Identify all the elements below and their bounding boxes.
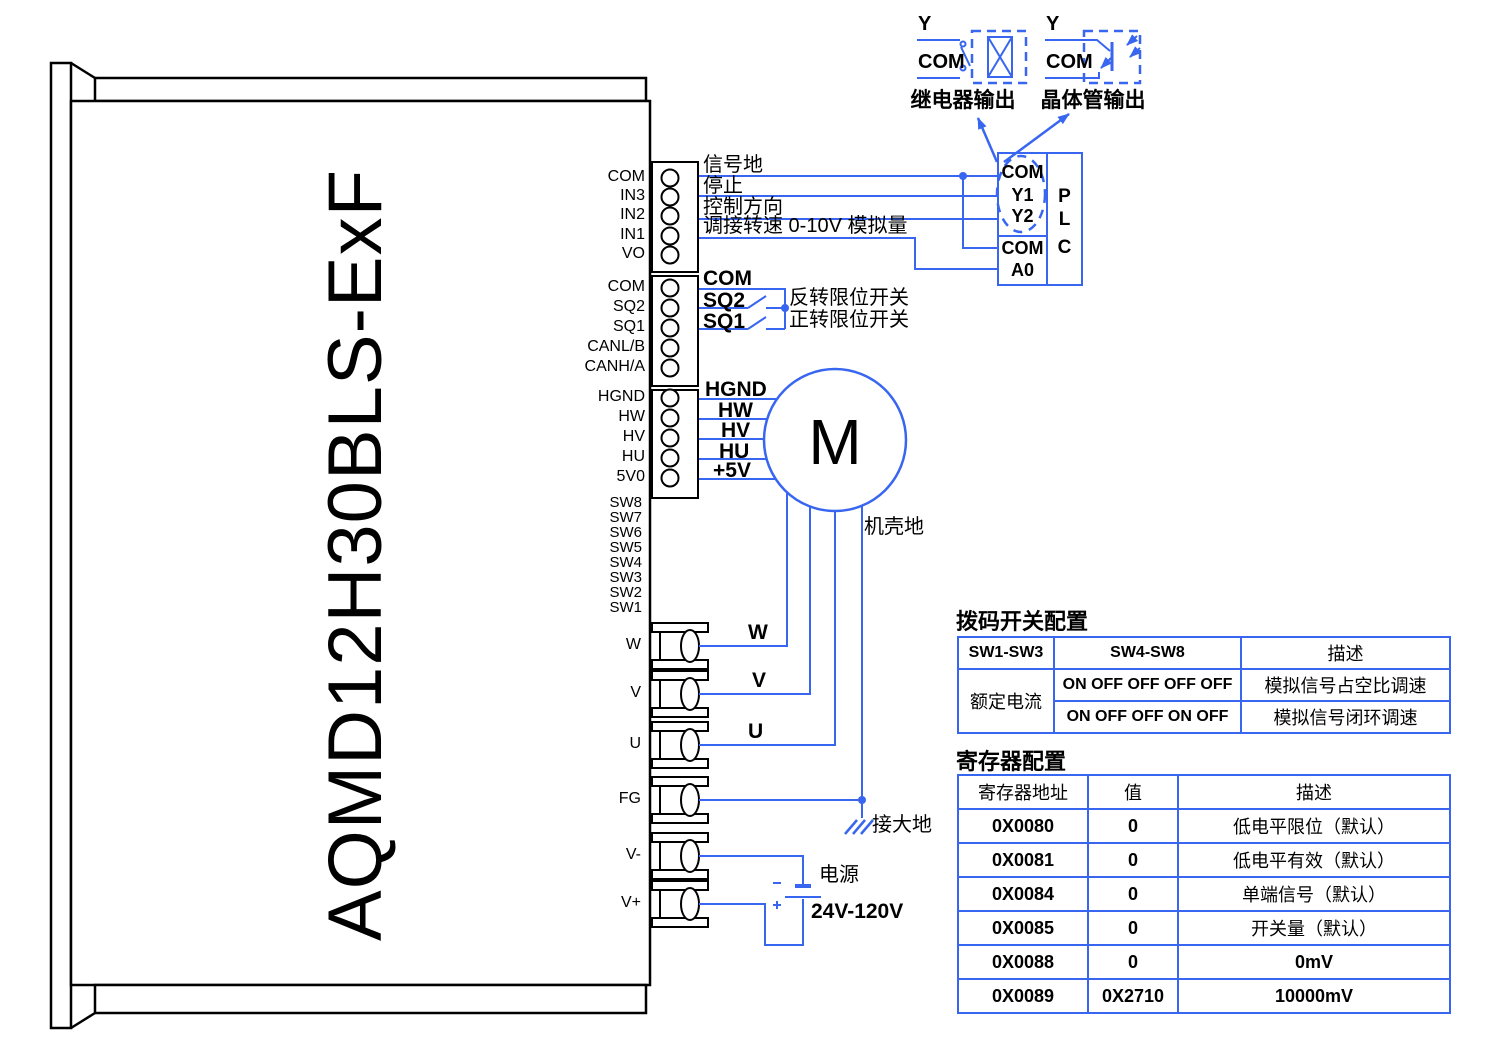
reg-addr: 0X0089 (958, 979, 1088, 1013)
reg-addr: 0X0085 (958, 911, 1088, 945)
wiring-diagram: AQMD12H30BLS-ExF M COM IN3 IN2 IN1 VO CO… (0, 0, 1500, 1048)
pin-label-in3: IN3 (569, 187, 645, 205)
dip-table-title: 拨码开关配置 (956, 604, 1088, 636)
pin-label-hgnd: HGND (569, 388, 645, 406)
table-row: 0X0084 0 单端信号（默认） (958, 877, 1450, 911)
reg-desc: 低电平限位（默认） (1178, 809, 1450, 843)
reg-value: 0 (1088, 877, 1178, 911)
plc-pin-a0: A0 (998, 260, 1047, 281)
pin-label-hu: HU (569, 448, 645, 466)
wire-label-stop: 停止 (703, 175, 743, 197)
dip-col2-header: SW4-SW8 (1054, 637, 1241, 669)
pin-label-sw1: SW1 (566, 600, 642, 617)
table-row: 额定电流 ON OFF OFF OFF OFF 模拟信号占空比调速 (958, 669, 1450, 701)
pin-label-sq1: SQ1 (569, 318, 645, 336)
dip-row1-desc: 模拟信号占空比调速 (1241, 669, 1450, 701)
pin-label-fg: FG (565, 790, 641, 808)
pin-label-in2: IN2 (569, 206, 645, 224)
transistor-y-label: Y (1046, 13, 1059, 35)
relay-output-caption: 继电器输出 (902, 84, 1024, 114)
pin-label-hv: HV (569, 428, 645, 446)
pin-label-com2: COM (569, 278, 645, 296)
reg-value: 0X2710 (1088, 979, 1178, 1013)
pin-label-hw: HW (569, 408, 645, 426)
reg-value: 0 (1088, 945, 1178, 979)
reg-col1-header: 寄存器地址 (958, 775, 1088, 809)
wire-label-sq2: SQ2 (703, 289, 745, 312)
dip-row1-switches: ON OFF OFF OFF OFF (1054, 669, 1241, 701)
wire-label-u: U (748, 720, 763, 743)
pin-label-u: U (565, 735, 641, 753)
wire-vminus (699, 856, 803, 884)
plc-letter-c: C (1047, 237, 1082, 259)
dip-row-group: 额定电流 (958, 669, 1054, 733)
relay-y-label: Y (918, 13, 931, 35)
wire-label-sq1: SQ1 (703, 310, 745, 333)
table-row: SW1-SW3 SW4-SW8 描述 (958, 637, 1450, 669)
power-supply-label: 电源 (819, 864, 859, 886)
register-table-title: 寄存器配置 (956, 744, 1066, 776)
pin-label-canlb: CANL/B (569, 338, 645, 356)
register-table: 寄存器地址 值 描述 0X0080 0 低电平限位（默认） 0X0081 0 低… (957, 774, 1451, 1014)
table-row: 0X0085 0 开关量（默认） (958, 911, 1450, 945)
pin-label-in1: IN1 (569, 226, 645, 244)
relay-com-label: COM (918, 51, 965, 73)
terminal-block-io (652, 162, 698, 272)
wire-w (699, 470, 787, 646)
wire-label-hgnd: HGND (705, 378, 767, 401)
reg-value: 0 (1088, 911, 1178, 945)
reg-desc: 开关量（默认） (1178, 911, 1450, 945)
plc-letter-l: L (1047, 209, 1082, 231)
terminal-block-hall (652, 390, 698, 499)
pin-label-vplus: V+ (565, 894, 641, 912)
table-row: 0X0088 0 0mV (958, 945, 1450, 979)
table-row: 0X0080 0 低电平限位（默认） (958, 809, 1450, 843)
junction-dot (781, 304, 789, 312)
wire-label-analog-speed: 调接转速 0-10V 模拟量 (703, 215, 907, 237)
transistor-output-caption: 晶体管输出 (1032, 84, 1154, 114)
pin-label-canha: CANH/A (569, 358, 645, 376)
reg-desc: 低电平有效（默认） (1178, 843, 1450, 877)
pin-label-5v0: 5V0 (569, 468, 645, 486)
arrow-to-transistor (1004, 114, 1069, 162)
arrow-to-relay (978, 118, 997, 162)
wire-label-forward-limit: 正转限位开关 (789, 309, 909, 331)
pin-label-vminus: V- (565, 846, 641, 864)
wire-label-signal-ground: 信号地 (703, 154, 763, 176)
wire-com-to-plc-com (963, 176, 998, 248)
reg-value: 0 (1088, 843, 1178, 877)
reg-desc: 0mV (1178, 945, 1450, 979)
table-row: 寄存器地址 值 描述 (958, 775, 1450, 809)
plc-letter-p: P (1047, 186, 1082, 208)
reg-col3-header: 描述 (1178, 775, 1450, 809)
dip-row2-switches: ON OFF OFF ON OFF (1054, 701, 1241, 733)
pin-label-sq2: SQ2 (569, 298, 645, 316)
wire-label-hv: HV (721, 419, 750, 442)
wire-label-chassis-ground: 机壳地 (864, 516, 924, 538)
wire-vplus (699, 899, 803, 945)
motor-symbol: M (795, 402, 875, 482)
output-type-arrows (978, 114, 1069, 162)
pin-label-w: W (565, 636, 641, 654)
pin-label-v: V (565, 684, 641, 702)
dip-col1-header: SW1-SW3 (958, 637, 1054, 669)
reg-addr: 0X0080 (958, 809, 1088, 843)
wire-analog-speed (699, 238, 998, 269)
table-row: 0X0089 0X2710 10000mV (958, 979, 1450, 1013)
reg-col2-header: 值 (1088, 775, 1178, 809)
terminal-block-limit-can (652, 276, 698, 386)
wire-label-v: V (752, 669, 766, 692)
reg-desc: 10000mV (1178, 979, 1450, 1013)
dip-row2-desc: 模拟信号闭环调速 (1241, 701, 1450, 733)
dip-switch-table: SW1-SW3 SW4-SW8 描述 额定电流 ON OFF OFF OFF O… (957, 636, 1451, 734)
wire-label-reverse-limit: 反转限位开关 (789, 287, 909, 309)
wire-chassis-earth (699, 470, 862, 818)
pin-label-vo: VO (569, 245, 645, 263)
plc-pin-y2: Y2 (998, 206, 1047, 227)
transistor-com-label: COM (1046, 51, 1093, 73)
reg-addr: 0X0081 (958, 843, 1088, 877)
reg-desc: 单端信号（默认） (1178, 877, 1450, 911)
plc-pin-com-top: COM (998, 162, 1047, 183)
earth-ground-icon (845, 820, 873, 834)
wire-label-earth-ground: 接大地 (872, 814, 932, 836)
device-model: AQMD12H30BLS-ExF (301, 145, 411, 965)
power-supply-range: 24V-120V (811, 900, 903, 923)
plc-pin-com-bottom: COM (998, 238, 1047, 259)
reg-value: 0 (1088, 809, 1178, 843)
reg-addr: 0X0084 (958, 877, 1088, 911)
plc-pin-y1: Y1 (998, 185, 1047, 206)
wire-label-w: W (748, 621, 768, 644)
wire-label-com: COM (703, 267, 752, 290)
junction-dot (858, 796, 866, 804)
reg-addr: 0X0088 (958, 945, 1088, 979)
table-row: 0X0081 0 低电平有效（默认） (958, 843, 1450, 877)
junction-dot (959, 172, 967, 180)
lug-terminals (652, 623, 708, 927)
wire-u (699, 470, 835, 745)
wire-label-5v: +5V (713, 459, 751, 482)
dip-col3-header: 描述 (1241, 637, 1450, 669)
pin-label-com: COM (569, 168, 645, 186)
wire-v (699, 470, 810, 694)
